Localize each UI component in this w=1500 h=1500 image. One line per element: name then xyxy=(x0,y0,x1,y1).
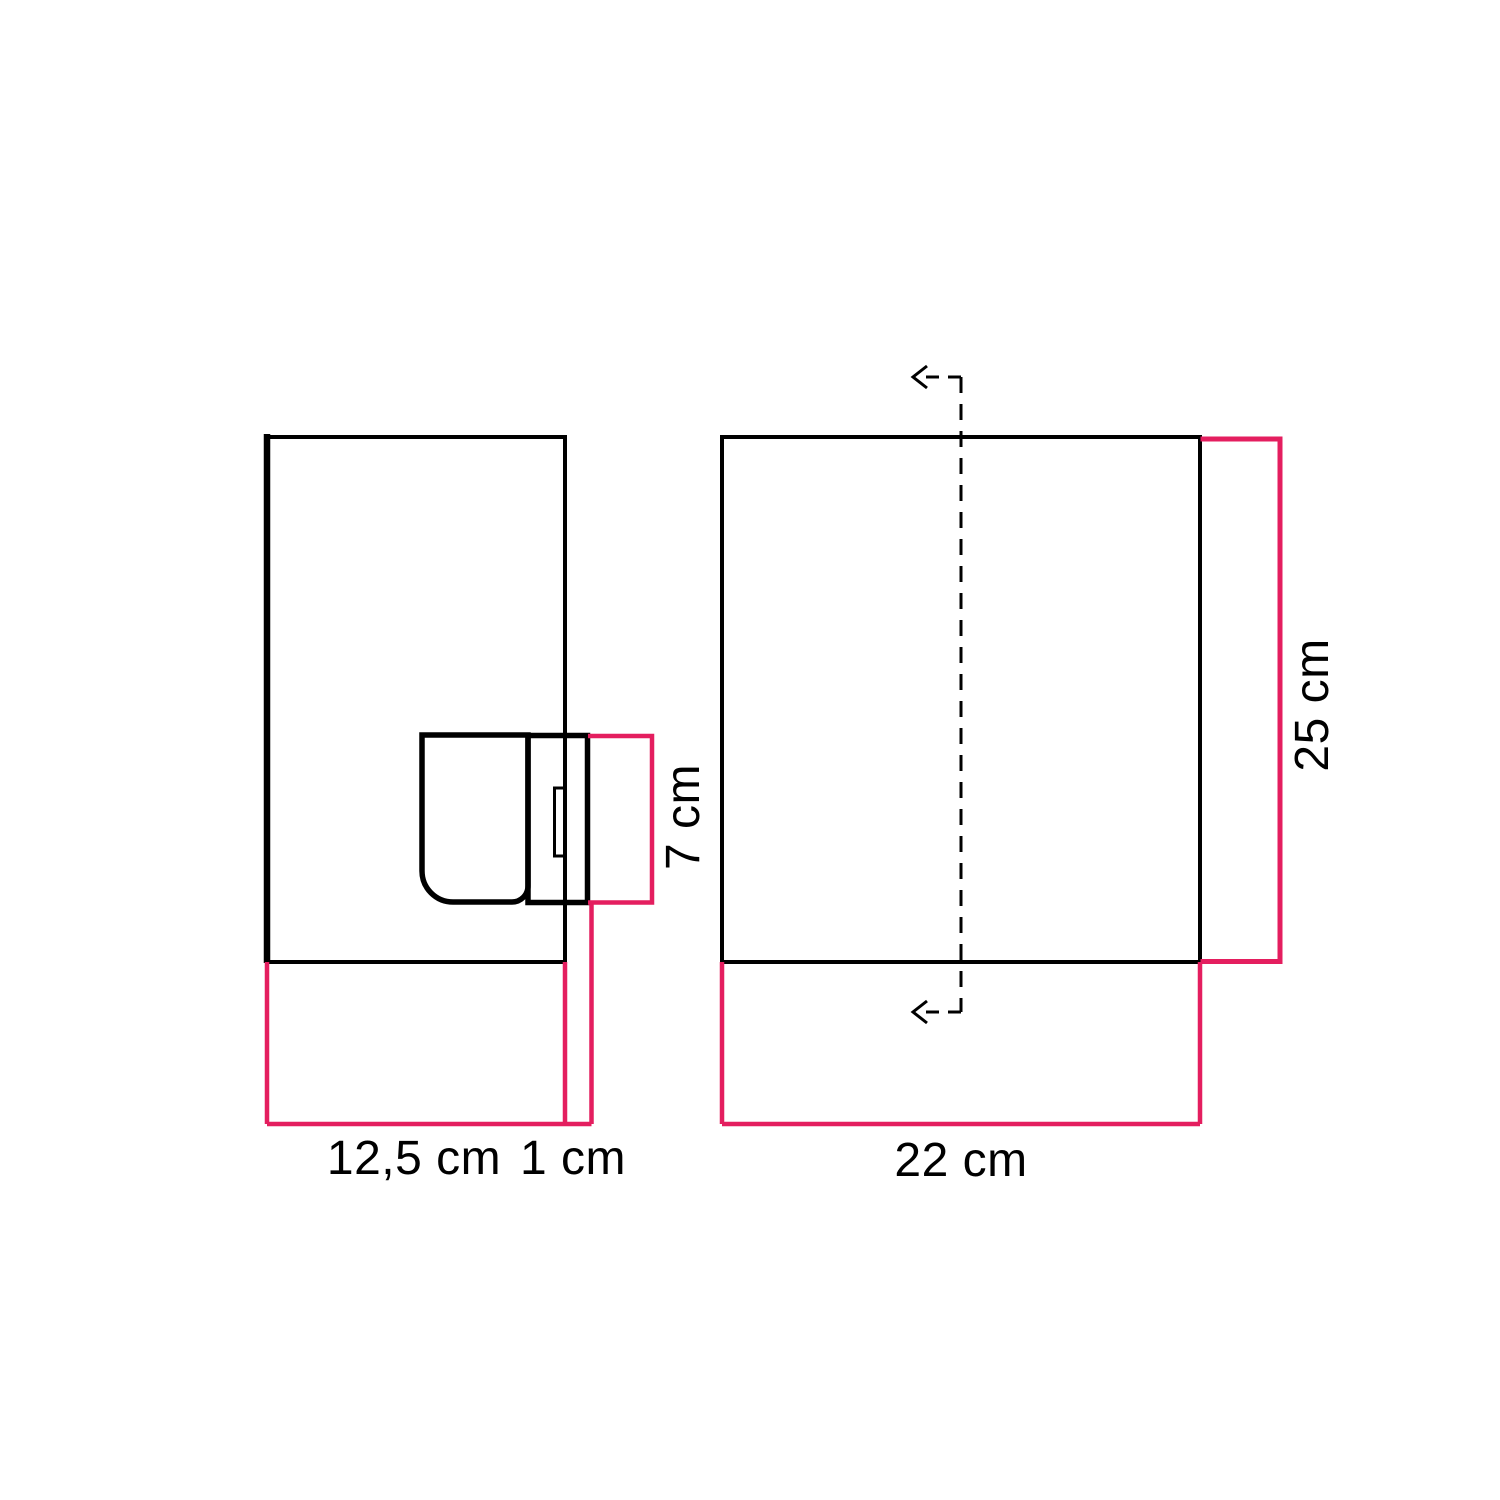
canvas-background xyxy=(0,0,1500,1500)
diagram-canvas: 12,5 cm 1 cm 7 cm 22 cm 25 cm xyxy=(0,0,1500,1500)
label-front-height: 25 cm xyxy=(1286,638,1339,771)
dimension-diagram: 12,5 cm 1 cm 7 cm 22 cm 25 cm xyxy=(0,0,1500,1500)
label-socket-height: 7 cm xyxy=(657,764,710,870)
label-side-depth: 12,5 cm xyxy=(327,1132,501,1185)
cable-slot xyxy=(555,788,565,856)
label-side-wall-gap: 1 cm xyxy=(520,1132,626,1185)
label-front-width: 22 cm xyxy=(894,1134,1027,1187)
